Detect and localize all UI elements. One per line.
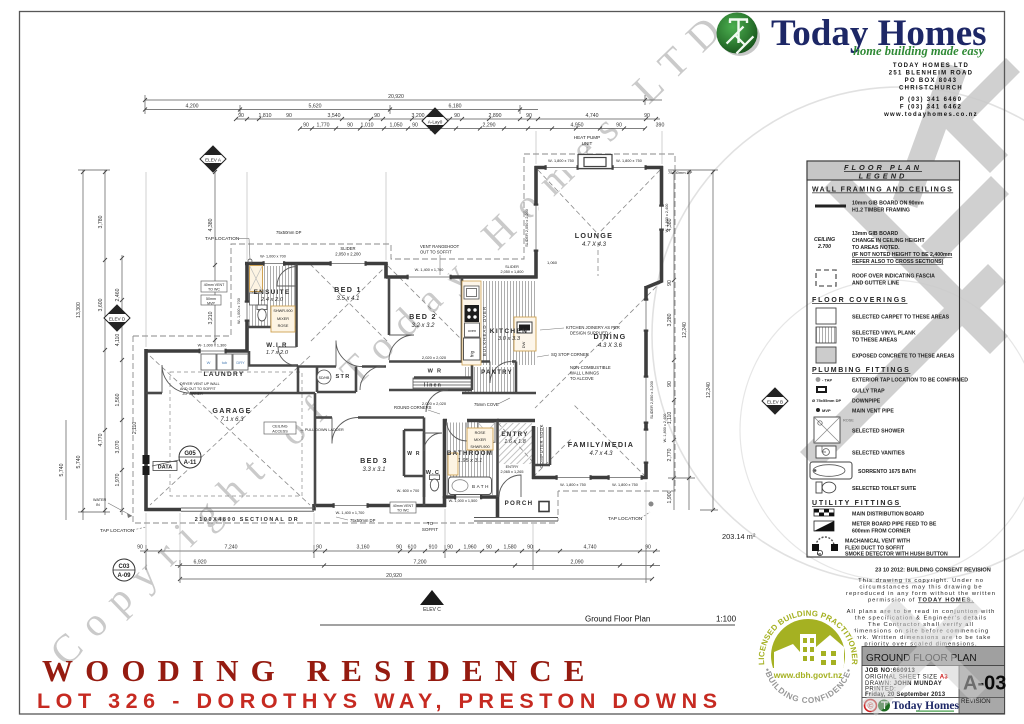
svg-text:90: 90 bbox=[137, 545, 143, 551]
svg-text:W: W bbox=[207, 360, 211, 365]
svg-text:Ø 75x55mm DP: Ø 75x55mm DP bbox=[812, 398, 841, 403]
svg-text:ELEV D: ELEV D bbox=[109, 317, 126, 322]
svg-text:EXTERIOR TAP LOCATION TO BE CO: EXTERIOR TAP LOCATION TO BE CONFIRMED bbox=[852, 378, 968, 384]
svg-text:1,900: 1,900 bbox=[667, 490, 673, 503]
svg-text:LEGEND: LEGEND bbox=[859, 172, 908, 181]
svg-text:20,920: 20,920 bbox=[388, 94, 404, 100]
svg-text:610: 610 bbox=[408, 545, 417, 551]
svg-text:G05: G05 bbox=[184, 451, 196, 457]
svg-text:90: 90 bbox=[447, 545, 453, 551]
svg-text:UNIT: UNIT bbox=[582, 141, 593, 146]
svg-text:ROSE: ROSE bbox=[843, 419, 854, 423]
svg-text:4.3 X 3.6: 4.3 X 3.6 bbox=[598, 343, 623, 349]
svg-text:2,290: 2,290 bbox=[483, 123, 496, 129]
svg-text:SELECTED TOILET SUITE: SELECTED TOILET SUITE bbox=[852, 486, 917, 492]
svg-text:ENSUITE: ENSUITE bbox=[254, 289, 291, 296]
svg-text:1:100: 1:100 bbox=[716, 615, 737, 624]
svg-text:www.todayhomes.co.nz: www.todayhomes.co.nz bbox=[883, 112, 978, 118]
svg-text:IN: IN bbox=[96, 503, 100, 507]
svg-text:2.4 x 2.0: 2.4 x 2.0 bbox=[260, 297, 284, 303]
svg-text:W- 1,800 x 2,400: W- 1,800 x 2,400 bbox=[665, 204, 669, 233]
svg-text:3,780: 3,780 bbox=[98, 215, 104, 228]
svg-text:PLUMBING FITTINGS: PLUMBING FITTINGS bbox=[812, 367, 910, 374]
svg-text:W- 1,000 x 1,500: W- 1,000 x 1,500 bbox=[449, 499, 478, 503]
svg-text:W- 1,400 x 1,700: W- 1,400 x 1,700 bbox=[415, 268, 444, 272]
svg-text:PO BOX 8043: PO BOX 8043 bbox=[905, 78, 958, 84]
svg-text:OUT TO SOFFIT: OUT TO SOFFIT bbox=[420, 250, 452, 255]
svg-text:- TAP: - TAP bbox=[822, 378, 832, 383]
svg-text:COMPUTER NOOK: COMPUTER NOOK bbox=[539, 424, 544, 468]
svg-text:3,600: 3,600 bbox=[98, 298, 104, 311]
svg-text:KITCHEN: KITCHEN bbox=[490, 328, 528, 335]
svg-text:1,110: 1,110 bbox=[667, 412, 673, 425]
svg-text:1,970: 1,970 bbox=[115, 473, 121, 486]
svg-text:CHRISTCHURCH: CHRISTCHURCH bbox=[899, 86, 963, 92]
svg-text:SELECTED CARPET TO THESE AREAS: SELECTED CARPET TO THESE AREAS bbox=[852, 315, 950, 321]
svg-text:3,280: 3,280 bbox=[667, 313, 673, 326]
svg-text:ROOF OVER INDICATING FASCIA: ROOF OVER INDICATING FASCIA bbox=[852, 274, 935, 280]
svg-text:90: 90 bbox=[412, 123, 418, 129]
svg-text:ELEV B: ELEV B bbox=[767, 400, 783, 405]
svg-text:50mm: 50mm bbox=[206, 297, 216, 301]
svg-text:4,200: 4,200 bbox=[186, 104, 199, 110]
svg-text:10mm GIB BOARD ON 90mm: 10mm GIB BOARD ON 90mm bbox=[852, 201, 924, 207]
svg-text:1,960: 1,960 bbox=[464, 545, 477, 551]
svg-text:7.1 x 6.3: 7.1 x 6.3 bbox=[220, 417, 244, 423]
svg-text:ENTRY: ENTRY bbox=[506, 465, 519, 469]
svg-text:TO WC: TO WC bbox=[208, 288, 220, 292]
svg-text:-BY OWNER: -BY OWNER bbox=[182, 392, 203, 396]
svg-text:DRYER VENT UP WALL: DRYER VENT UP WALL bbox=[180, 382, 220, 386]
svg-text:40mm VENT: 40mm VENT bbox=[393, 504, 414, 508]
svg-text:PORCH: PORCH bbox=[505, 500, 534, 507]
svg-text:GARAGE: GARAGE bbox=[212, 406, 251, 415]
svg-text:LAUNDRY: LAUNDRY bbox=[203, 371, 244, 378]
svg-text:2,020 x 2,020: 2,020 x 2,020 bbox=[422, 401, 447, 406]
svg-text:TO THESE AREAS: TO THESE AREAS bbox=[852, 338, 898, 344]
svg-text:WALL LININGS: WALL LININGS bbox=[570, 371, 599, 376]
svg-text:DESIGN SUPPLIED: DESIGN SUPPLIED bbox=[570, 331, 608, 336]
svg-text:MIXER: MIXER bbox=[277, 317, 289, 321]
svg-text:A-Lay0: A-Lay0 bbox=[428, 120, 443, 125]
svg-text:WATER: WATER bbox=[93, 498, 107, 502]
svg-text:ELEV C: ELEV C bbox=[423, 607, 441, 613]
svg-text:3,160: 3,160 bbox=[357, 545, 370, 551]
svg-text:2.700: 2.700 bbox=[817, 244, 831, 250]
svg-text:SLIDER 2,050 x 2,200: SLIDER 2,050 x 2,200 bbox=[525, 209, 529, 247]
svg-text:SQ STOP CORNER: SQ STOP CORNER bbox=[551, 352, 589, 357]
svg-text:GULLY TRAP: GULLY TRAP bbox=[852, 389, 885, 395]
svg-text:W- 1,400 x 1,700: W- 1,400 x 1,700 bbox=[336, 511, 365, 515]
svg-text:90: 90 bbox=[616, 123, 622, 129]
svg-text:MAIN DISTRIBUTION BOARD: MAIN DISTRIBUTION BOARD bbox=[852, 512, 924, 518]
svg-text:SLIDER 2,050 x 3,200: SLIDER 2,050 x 3,200 bbox=[650, 381, 654, 419]
svg-text:4,740: 4,740 bbox=[584, 545, 597, 551]
svg-text:3.0 x 3.3: 3.0 x 3.3 bbox=[498, 336, 521, 342]
svg-text:F (03) 341 6462: F (03) 341 6462 bbox=[900, 105, 962, 111]
svg-text:MVP: MVP bbox=[822, 408, 831, 413]
svg-text:DOWNPIPE: DOWNPIPE bbox=[852, 399, 881, 405]
svg-text:home building made easy: home building made easy bbox=[853, 44, 984, 58]
svg-text:ENTRY: ENTRY bbox=[501, 431, 528, 438]
svg-text:SELECTED VANITIES: SELECTED VANITIES bbox=[852, 451, 905, 457]
svg-text:MVP: MVP bbox=[207, 302, 215, 306]
svg-text:A-09: A-09 bbox=[117, 573, 131, 579]
svg-text:TAP LOCATION: TAP LOCATION bbox=[100, 528, 135, 534]
svg-text:W.C: W.C bbox=[426, 470, 440, 476]
svg-text:REVISION: REVISION bbox=[961, 698, 991, 705]
svg-text:HEAT PUMP: HEAT PUMP bbox=[574, 135, 600, 140]
svg-text:linen: linen bbox=[424, 383, 442, 389]
svg-text:MIXER: MIXER bbox=[474, 438, 486, 442]
svg-text:W- 1,800 x 750: W- 1,800 x 750 bbox=[612, 483, 638, 487]
svg-text:4,380: 4,380 bbox=[208, 218, 214, 231]
svg-text:BATH: BATH bbox=[472, 484, 490, 489]
svg-text:TODAY HOMES LTD: TODAY HOMES LTD bbox=[893, 63, 969, 69]
svg-text:90: 90 bbox=[486, 545, 492, 551]
svg-text:251 BLENHEIM ROAD: 251 BLENHEIM ROAD bbox=[889, 71, 973, 77]
svg-text:4,740: 4,740 bbox=[586, 113, 599, 119]
svg-text:75x50mm DP: 75x50mm DP bbox=[276, 230, 302, 235]
svg-text:SMOKE DETECTOR WITH HUSH BUTTO: SMOKE DETECTOR WITH HUSH BUTTON bbox=[845, 552, 948, 558]
svg-text:SELECTED SHOWER: SELECTED SHOWER bbox=[852, 429, 905, 435]
svg-text:6,180: 6,180 bbox=[449, 104, 462, 110]
svg-text:1,580: 1,580 bbox=[504, 545, 517, 551]
svg-text:13mm GIB BOARD: 13mm GIB BOARD bbox=[852, 231, 898, 237]
svg-text:SOFFIT: SOFFIT bbox=[422, 527, 439, 532]
svg-text:ROSE: ROSE bbox=[278, 324, 289, 328]
svg-text:A-11: A-11 bbox=[184, 460, 197, 466]
svg-text:BED 1: BED 1 bbox=[334, 285, 362, 294]
svg-text:TO AREAS NOTED.: TO AREAS NOTED. bbox=[852, 245, 900, 251]
svg-text:75x50mm DP: 75x50mm DP bbox=[350, 518, 376, 523]
svg-text:3.5 x 4.1: 3.5 x 4.1 bbox=[336, 296, 359, 302]
svg-text:SHWR-900: SHWR-900 bbox=[273, 309, 292, 313]
svg-text:SHWR-900: SHWR-900 bbox=[470, 445, 489, 449]
svg-text:C03: C03 bbox=[118, 564, 130, 570]
svg-text:W R: W R bbox=[428, 369, 443, 375]
svg-text:1.95 x 3.1: 1.95 x 3.1 bbox=[458, 458, 483, 464]
svg-text:12,240: 12,240 bbox=[706, 382, 712, 398]
svg-text:Ground Floor Plan: Ground Floor Plan bbox=[585, 615, 650, 624]
svg-text:1,770: 1,770 bbox=[317, 123, 330, 129]
svg-text:TAP LOCATION: TAP LOCATION bbox=[608, 516, 643, 522]
svg-text:90: 90 bbox=[667, 381, 673, 387]
svg-text:DATA: DATA bbox=[158, 465, 173, 471]
svg-text:12,240: 12,240 bbox=[682, 322, 688, 338]
svg-text:W- 1,000 x 1,300: W- 1,000 x 1,300 bbox=[198, 344, 227, 348]
svg-text:WALL FRAMING AND CEILINGS: WALL FRAMING AND CEILINGS bbox=[812, 187, 953, 194]
svg-text:3,070: 3,070 bbox=[115, 440, 121, 453]
svg-text:SD/HB: SD/HB bbox=[319, 376, 330, 380]
svg-text:UTILITY FITTINGS: UTILITY FITTINGS bbox=[812, 500, 901, 507]
svg-text:1,560: 1,560 bbox=[115, 393, 121, 406]
svg-text:600mm FROM CORNER: 600mm FROM CORNER bbox=[852, 529, 911, 535]
svg-text:CEILING: CEILING bbox=[814, 237, 835, 243]
svg-text:TO: TO bbox=[427, 521, 434, 526]
svg-text:circumstances may this drawing: circumstances may this drawing be bbox=[859, 585, 982, 591]
svg-text:7,240: 7,240 bbox=[225, 545, 238, 551]
svg-text:W- 600 x 700: W- 600 x 700 bbox=[397, 489, 420, 493]
svg-text:MACHANICAL VENT WITH: MACHANICAL VENT WITH bbox=[845, 539, 910, 545]
svg-text:VENT RANGEHOOT: VENT RANGEHOOT bbox=[420, 244, 460, 249]
svg-text:FLOOR COVERINGS: FLOOR COVERINGS bbox=[812, 297, 907, 304]
svg-text:910: 910 bbox=[429, 545, 438, 551]
svg-text:90: 90 bbox=[347, 123, 353, 129]
svg-text:390: 390 bbox=[656, 123, 665, 129]
svg-text:2,090: 2,090 bbox=[571, 560, 584, 566]
svg-text:1,050: 1,050 bbox=[390, 123, 403, 129]
svg-text:ROSE: ROSE bbox=[475, 431, 486, 435]
svg-text:2,460: 2,460 bbox=[115, 288, 121, 301]
svg-text:tub: tub bbox=[222, 360, 228, 365]
svg-text:40mm VENT: 40mm VENT bbox=[204, 283, 225, 287]
svg-text:W.I.R: W.I.R bbox=[266, 342, 288, 349]
svg-text:2,770: 2,770 bbox=[667, 448, 673, 461]
svg-text:LOT 326 - DOROTHYS WAY, PRESTO: LOT 326 - DOROTHYS WAY, PRESTON DOWNS bbox=[37, 689, 723, 713]
svg-text:H1.2 TIMBER FRAMING: H1.2 TIMBER FRAMING bbox=[852, 208, 910, 214]
svg-text:2,020 x 2,020: 2,020 x 2,020 bbox=[422, 355, 447, 360]
svg-text:BULKHEAD OVER: BULKHEAD OVER bbox=[482, 306, 487, 356]
svg-text:MAIN VENT PIPE: MAIN VENT PIPE bbox=[852, 409, 894, 415]
svg-text:W- 1,000 x 700: W- 1,000 x 700 bbox=[260, 255, 286, 259]
svg-text:PANTRY: PANTRY bbox=[481, 370, 513, 376]
svg-text:KITCHEN JOINERY AS PER: KITCHEN JOINERY AS PER bbox=[566, 325, 620, 330]
svg-text:90: 90 bbox=[238, 113, 244, 119]
svg-text:BED 2: BED 2 bbox=[409, 312, 437, 321]
svg-text:P (03) 341 6460: P (03) 341 6460 bbox=[900, 97, 962, 103]
svg-text:SELECTED VINYL PLANK: SELECTED VINYL PLANK bbox=[852, 331, 916, 337]
svg-text:permission of TODAY HOMES.: permission of TODAY HOMES. bbox=[868, 598, 974, 604]
svg-text:90: 90 bbox=[286, 113, 292, 119]
svg-text:DW: DW bbox=[521, 341, 526, 348]
svg-text:4.7 X 4.3: 4.7 X 4.3 bbox=[582, 242, 607, 248]
svg-text:75x50mm DP: 75x50mm DP bbox=[668, 170, 693, 175]
svg-text:90: 90 bbox=[667, 280, 673, 286]
svg-text:90: 90 bbox=[303, 123, 309, 129]
svg-text:1,010: 1,010 bbox=[361, 123, 374, 129]
svg-text:BATHROOM: BATHROOM bbox=[447, 450, 493, 457]
svg-text:W- 1,800 x 750: W- 1,800 x 750 bbox=[560, 483, 586, 487]
svg-text:frig: frig bbox=[470, 350, 475, 357]
svg-text:ELEV A: ELEV A bbox=[205, 158, 222, 163]
svg-text:LOUNGE: LOUNGE bbox=[575, 231, 614, 240]
svg-text:3.3 x 3.1: 3.3 x 3.1 bbox=[362, 467, 385, 473]
svg-text:2100X4800 SECTIONAL DR: 2100X4800 SECTIONAL DR bbox=[195, 517, 300, 523]
svg-text:reproduced in any form without: reproduced in any form without the writt… bbox=[846, 591, 996, 597]
svg-text:SLIDER: SLIDER bbox=[505, 265, 519, 269]
svg-text:NON-COMBUSTIBLE: NON-COMBUSTIBLE bbox=[570, 365, 611, 370]
svg-text:— PULL DOWN LADDER: — PULL DOWN LADDER bbox=[300, 428, 344, 432]
svg-text:TO WC: TO WC bbox=[397, 509, 409, 513]
svg-text:SLIDER: SLIDER bbox=[340, 246, 355, 251]
svg-text:5,740: 5,740 bbox=[59, 463, 65, 476]
svg-text:90: 90 bbox=[454, 113, 460, 119]
svg-text:METER BOARD PIPE FEED TO BE: METER BOARD PIPE FEED TO BE bbox=[852, 522, 937, 528]
svg-text:STR: STR bbox=[335, 374, 350, 380]
svg-text:2,050 x 1,800: 2,050 x 1,800 bbox=[500, 270, 523, 274]
svg-text:W- 1,800 x 750: W- 1,800 x 750 bbox=[616, 159, 642, 163]
svg-text:TO ALCOVE: TO ALCOVE bbox=[570, 376, 594, 381]
svg-text:This drawing is copyright. Und: This drawing is copyright. Under no bbox=[858, 578, 984, 584]
svg-text:75mm COVE: 75mm COVE bbox=[474, 402, 499, 407]
svg-text:W- 1,000 x 700: W- 1,000 x 700 bbox=[237, 298, 241, 324]
svg-text:(IF NOT NOTED HEIGHT TO BE 2,4: (IF NOT NOTED HEIGHT TO BE 2,400mm bbox=[852, 252, 953, 258]
svg-text:ACCESS: ACCESS bbox=[272, 430, 288, 434]
svg-text:BED 3: BED 3 bbox=[360, 456, 388, 465]
svg-text:4,770: 4,770 bbox=[98, 433, 104, 446]
svg-text:203.14 m2: 203.14 m2 bbox=[722, 532, 756, 541]
svg-text:DRY: DRY bbox=[236, 360, 245, 365]
svg-text:W- 1,800 x 2,400: W- 1,800 x 2,400 bbox=[663, 414, 667, 443]
svg-text:90: 90 bbox=[527, 545, 533, 551]
svg-text:FAMILY/MEDIA: FAMILY/MEDIA bbox=[568, 440, 634, 449]
svg-text:13,300: 13,300 bbox=[76, 302, 82, 318]
svg-text:3,540: 3,540 bbox=[328, 113, 341, 119]
svg-text:Today Homes: Today Homes bbox=[892, 700, 960, 712]
svg-text:2,050 x 2,200: 2,050 x 2,200 bbox=[335, 252, 361, 257]
svg-text:1,060: 1,060 bbox=[547, 260, 558, 265]
svg-text:W R: W R bbox=[407, 451, 421, 457]
svg-text:AND GUTTER LINE: AND GUTTER LINE bbox=[852, 281, 900, 287]
svg-text:6,920: 6,920 bbox=[194, 560, 207, 566]
svg-text:oven: oven bbox=[468, 329, 476, 333]
svg-text:90: 90 bbox=[526, 113, 532, 119]
svg-text:23 10 2012: BUILDING CONSENT R: 23 10 2012: BUILDING CONSENT REVISION bbox=[875, 568, 991, 574]
svg-text:7,200: 7,200 bbox=[414, 560, 427, 566]
svg-text:90: 90 bbox=[374, 113, 380, 119]
svg-text:REFER ALSO TO CROSS SECTIONS): REFER ALSO TO CROSS SECTIONS) bbox=[852, 259, 944, 265]
svg-text:3.2 x 3.2: 3.2 x 3.2 bbox=[411, 323, 435, 329]
svg-text:5,740: 5,740 bbox=[76, 455, 82, 468]
svg-text:3,210: 3,210 bbox=[208, 311, 214, 324]
svg-text:20,920: 20,920 bbox=[386, 573, 402, 579]
svg-text:TAP LOCATION: TAP LOCATION bbox=[205, 236, 240, 242]
svg-text:SORRENTO 1675 BATH: SORRENTO 1675 BATH bbox=[858, 469, 916, 475]
svg-text:AND OUT TO SOFFIT: AND OUT TO SOFFIT bbox=[180, 387, 217, 391]
svg-text:5,620: 5,620 bbox=[309, 104, 322, 110]
svg-text:W- 1,800 x 750: W- 1,800 x 750 bbox=[548, 159, 574, 163]
svg-text:EXPOSED CONCRETE TO THESE AREA: EXPOSED CONCRETE TO THESE AREAS bbox=[852, 354, 955, 360]
svg-text:1.7 x 2.0: 1.7 x 2.0 bbox=[266, 350, 289, 356]
svg-text:WOODING RESIDENCE: WOODING RESIDENCE bbox=[42, 653, 597, 688]
svg-text:CHANGE IN CEILING HEIGHT: CHANGE IN CEILING HEIGHT bbox=[852, 238, 925, 244]
svg-text:2,065 x 1,265: 2,065 x 1,265 bbox=[500, 470, 523, 474]
svg-text:4.7 x 4.3: 4.7 x 4.3 bbox=[589, 451, 613, 457]
svg-text:1.6 x 1.8: 1.6 x 1.8 bbox=[504, 439, 526, 445]
svg-text:www.dbh.govt.nz: www.dbh.govt.nz bbox=[773, 670, 843, 680]
svg-text:4,110: 4,110 bbox=[115, 334, 121, 347]
svg-text:CEILING: CEILING bbox=[272, 425, 287, 429]
